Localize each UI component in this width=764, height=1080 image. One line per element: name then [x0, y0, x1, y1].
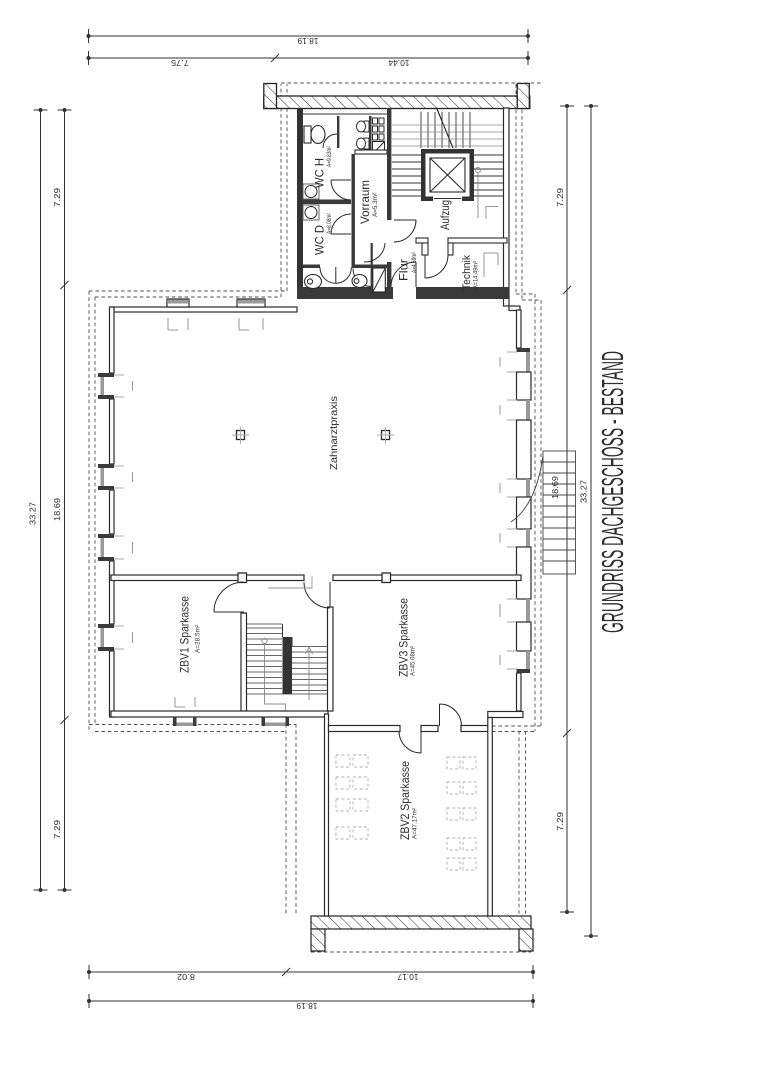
svg-text:Technik: Technik	[461, 255, 473, 290]
svg-text:7.29: 7.29	[556, 187, 565, 207]
svg-text:18.19: 18.19	[297, 36, 319, 45]
svg-text:WC H: WC H	[313, 158, 327, 188]
svg-text:8.02: 8.02	[176, 972, 195, 981]
svg-text:Zahnarztpraxis: Zahnarztpraxis	[328, 396, 340, 470]
svg-text:A=4.69m²: A=4.69m²	[411, 252, 418, 273]
svg-text:ZBV1 Sparkasse: ZBV1 Sparkasse	[178, 596, 192, 673]
svg-text:Vorraum: Vorraum	[358, 180, 372, 224]
svg-text:10.44: 10.44	[388, 58, 410, 67]
svg-text:A=8.08m²: A=8.08m²	[326, 213, 333, 234]
svg-text:ZBV2 Sparkasse: ZBV2 Sparkasse	[398, 761, 412, 840]
svg-text:7.29: 7.29	[53, 187, 62, 207]
svg-text:A=47.17m²: A=47.17m²	[412, 808, 419, 839]
svg-text:18.69: 18.69	[551, 475, 560, 499]
svg-text:7.29: 7.29	[53, 819, 62, 839]
svg-text:A=14.49m²: A=14.49m²	[473, 261, 480, 289]
svg-text:18.19: 18.19	[296, 1001, 318, 1010]
svg-text:GRUNDRISS DACHGESCHOSS - BE: GRUNDRISS DACHGESCHOSS - BESTAND	[596, 351, 630, 633]
svg-text:A=45.08m²: A=45.08m²	[410, 646, 417, 676]
svg-text:10.17: 10.17	[397, 972, 419, 981]
svg-text:ZBV3 Sparkasse: ZBV3 Sparkasse	[397, 598, 411, 677]
svg-text:A=28.5m²: A=28.5m²	[195, 625, 202, 653]
svg-text:7.29: 7.29	[556, 811, 565, 831]
svg-text:33.27: 33.27	[580, 479, 589, 503]
svg-text:7.75: 7.75	[170, 58, 189, 67]
svg-text:18.69: 18.69	[53, 497, 62, 521]
svg-text:WC D: WC D	[313, 225, 327, 255]
svg-text:A=9.83m²: A=9.83m²	[326, 146, 333, 167]
svg-text:Flur: Flur	[397, 259, 411, 281]
svg-text:A=5.3m²: A=5.3m²	[372, 193, 379, 217]
svg-text:Aufzug: Aufzug	[438, 200, 452, 230]
svg-text:33.27: 33.27	[29, 501, 38, 525]
